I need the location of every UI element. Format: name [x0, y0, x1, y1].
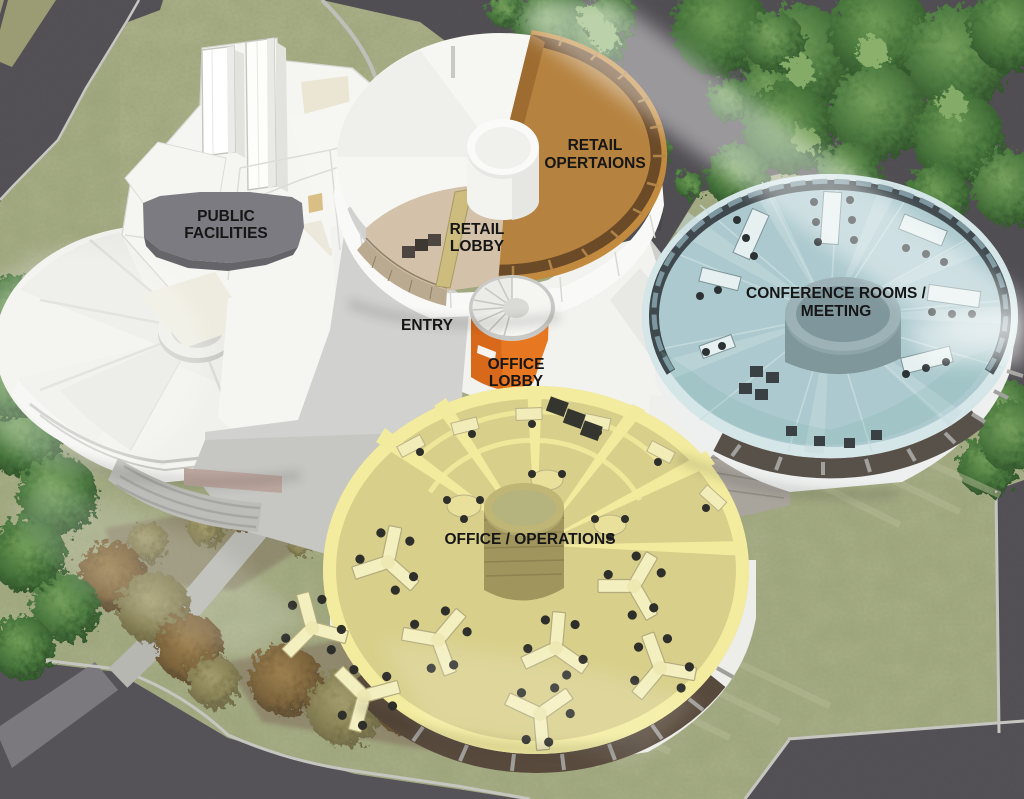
- svg-text:OPERTAIONS: OPERTAIONS: [544, 155, 645, 172]
- svg-text:RETAIL: RETAIL: [568, 137, 623, 154]
- svg-text:RETAIL: RETAIL: [450, 221, 505, 238]
- svg-text:LOBBY: LOBBY: [450, 238, 505, 255]
- svg-text:ENTRY: ENTRY: [401, 317, 454, 334]
- svg-text:OFFICE / OPERATIONS: OFFICE / OPERATIONS: [444, 531, 615, 548]
- svg-text:FACILITIES: FACILITIES: [184, 225, 268, 242]
- svg-text:CONFERENCE ROOMS /: CONFERENCE ROOMS /: [746, 285, 927, 302]
- svg-text:PUBLIC: PUBLIC: [197, 208, 255, 225]
- svg-text:OFFICE: OFFICE: [488, 356, 545, 373]
- svg-text:MEETING: MEETING: [801, 303, 872, 320]
- svg-text:LOBBY: LOBBY: [489, 373, 544, 390]
